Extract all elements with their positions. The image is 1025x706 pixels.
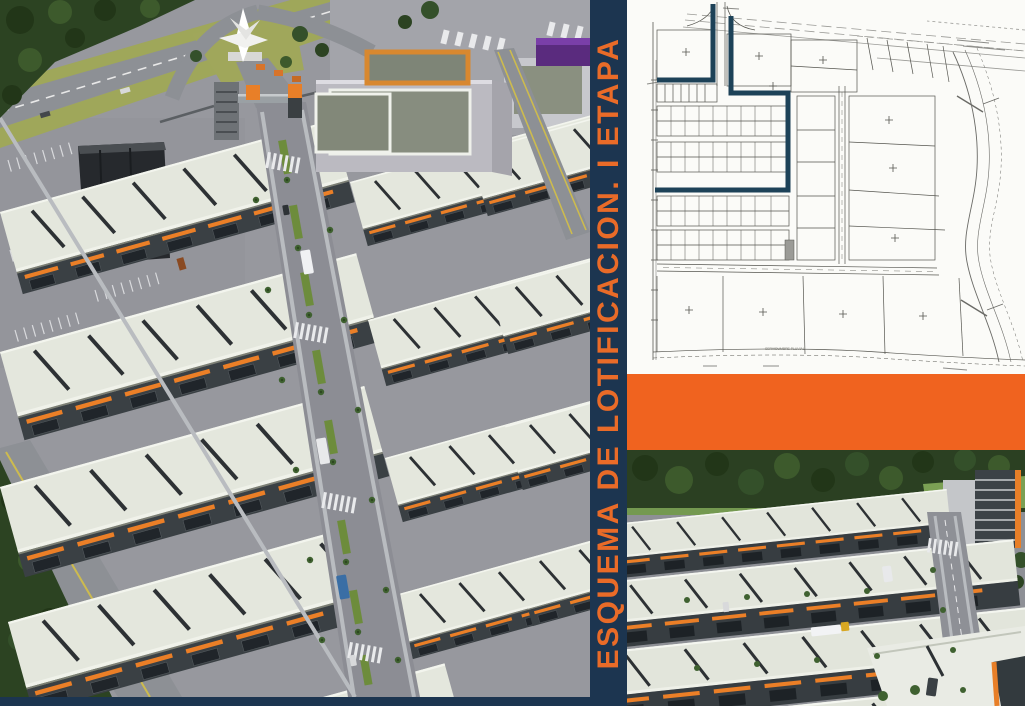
plan-bottom-label: SERVIDUMBRE PLUVIAL xyxy=(765,347,805,351)
plan-shaded-lot xyxy=(785,240,794,260)
site-plan-drawing: SERVIDUMBRE PLUVIAL xyxy=(627,0,1025,374)
left-aerial-render xyxy=(0,0,590,697)
site-plan-image: SERVIDUMBRE PLUVIAL xyxy=(627,0,1025,374)
brochure-page: ESQUEMA DE LOTIFICACION. I ETAPA xyxy=(0,0,1025,706)
orange-band xyxy=(627,374,1025,450)
right-column: SERVIDUMBRE PLUVIAL xyxy=(627,0,1025,706)
orange-frame-roof xyxy=(367,52,468,83)
title-stripe: ESQUEMA DE LOTIFICACION. I ETAPA xyxy=(590,0,627,706)
left-render-scene xyxy=(0,0,590,697)
bottom-render-scene xyxy=(627,450,1025,706)
bottom-aerial-render xyxy=(627,450,1025,706)
page-title: ESQUEMA DE LOTIFICACION. I ETAPA xyxy=(590,0,627,706)
